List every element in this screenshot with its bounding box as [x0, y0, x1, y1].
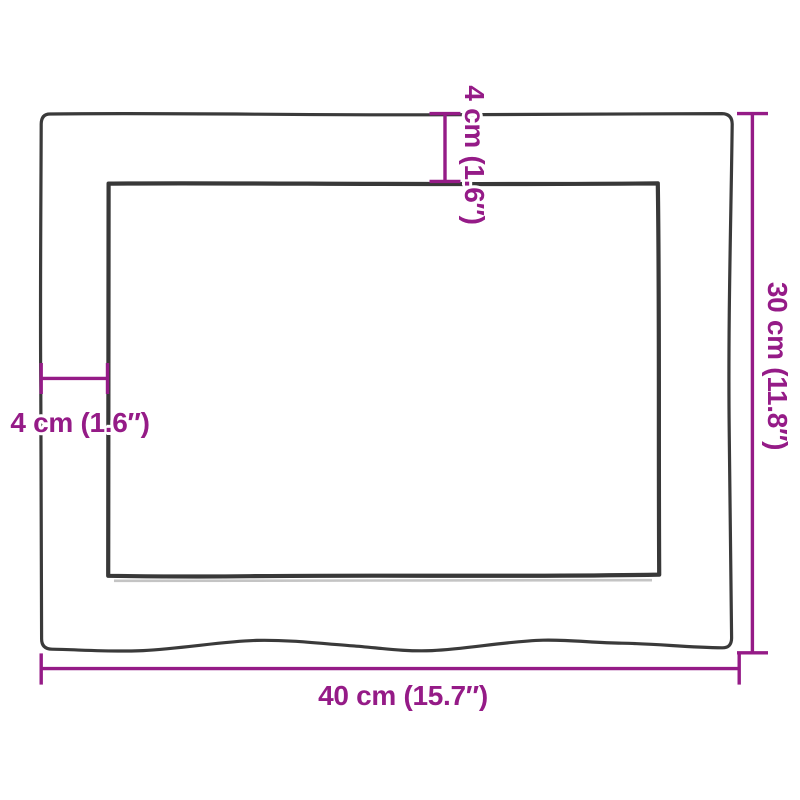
dimension-label-width: 40 cm (15.7″): [318, 680, 488, 712]
dimension-diagram: 4 cm (1.6″) 4 cm (1.6″) 30 cm (11.8″) 40…: [0, 0, 800, 800]
dimension-label-border-left: 4 cm (1.6″): [10, 407, 149, 439]
dimension-label-height: 30 cm (11.8″): [761, 282, 793, 450]
inner-panel-shadow: [114, 580, 652, 581]
board-outer-outline: [40, 114, 732, 652]
dimension-label-border-top: 4 cm (1.6″): [458, 85, 490, 224]
